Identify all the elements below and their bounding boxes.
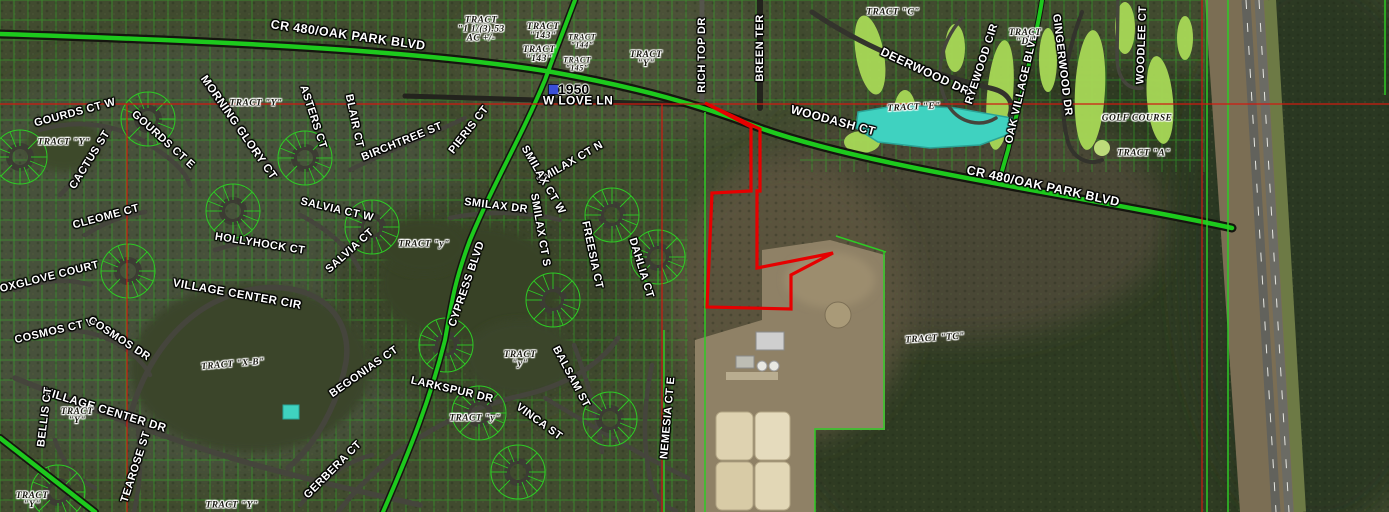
aerial-parcel-map[interactable]: 1950 CR 480/OAK PARK BLVDCR 480/OAK PARK… bbox=[0, 0, 1389, 512]
